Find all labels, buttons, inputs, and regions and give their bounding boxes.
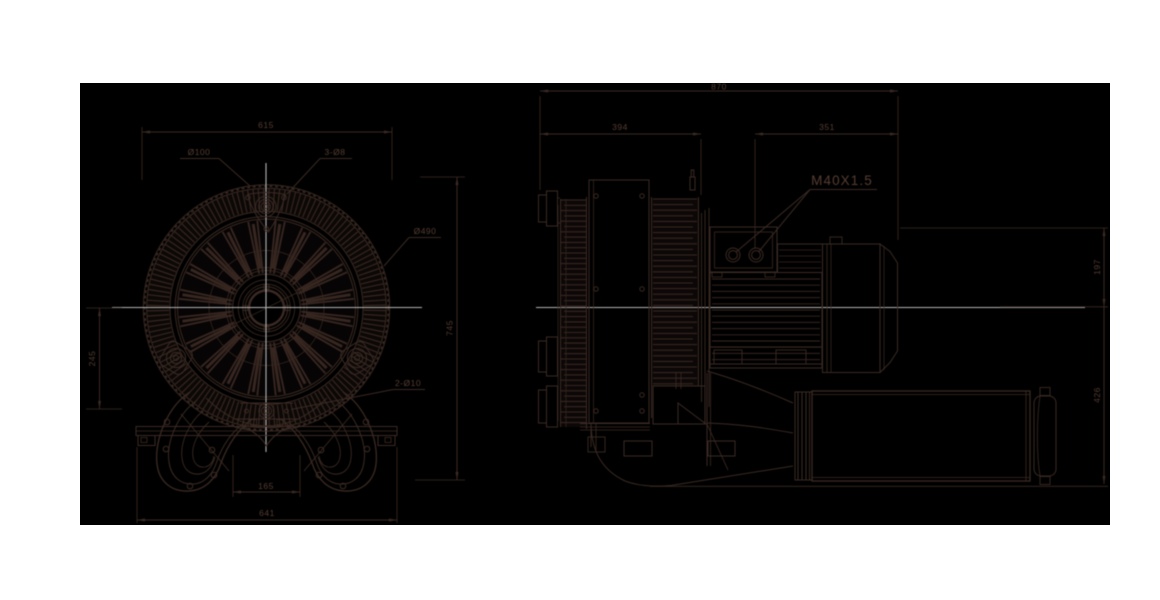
svg-text:426: 426: [1092, 387, 1102, 403]
svg-text:745: 745: [445, 320, 455, 336]
svg-text:870: 870: [711, 82, 727, 92]
svg-text:165: 165: [258, 481, 274, 491]
svg-text:2-Ø10: 2-Ø10: [395, 378, 421, 388]
svg-text:394: 394: [612, 122, 628, 132]
svg-text:351: 351: [819, 122, 835, 132]
svg-text:3-Ø8: 3-Ø8: [325, 147, 346, 157]
svg-text:Ø490: Ø490: [414, 226, 437, 236]
svg-text:245: 245: [87, 351, 97, 367]
svg-text:M40X1.5: M40X1.5: [811, 173, 873, 188]
svg-text:615: 615: [258, 120, 274, 130]
svg-text:197: 197: [1092, 259, 1102, 275]
svg-text:641: 641: [259, 508, 275, 518]
svg-text:Ø100: Ø100: [188, 147, 211, 157]
